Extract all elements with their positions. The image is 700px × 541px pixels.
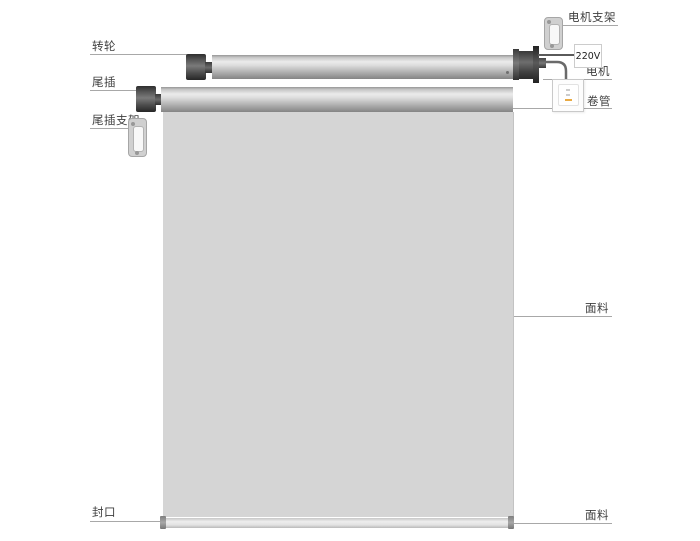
voltage-box: 220V <box>574 44 602 68</box>
roller-tube-label: 卷管 <box>587 95 611 108</box>
switch-indicator-dot <box>566 94 570 96</box>
fabric-bottom-label: 面料 <box>585 509 609 522</box>
tube-screw-dot <box>506 71 509 74</box>
idler-wheel-part <box>186 54 206 80</box>
motor-head <box>519 51 533 79</box>
fabric-panel <box>163 112 514 517</box>
bottom-seal-bar <box>166 518 508 528</box>
motor-tube <box>212 55 513 79</box>
motor-bracket-part <box>544 17 563 50</box>
switch-indicator-dot <box>566 89 570 91</box>
tail-plug-label: 尾插 <box>92 76 116 89</box>
screw-hole-icon <box>550 44 554 48</box>
bracket-slot <box>133 126 144 152</box>
switch-button <box>558 84 579 106</box>
motor-bracket-leader-line <box>558 25 618 26</box>
bottom-bar-right-cap <box>508 516 514 529</box>
idler-wheel-label: 转轮 <box>92 40 116 53</box>
voltage-value: 220V <box>576 51 601 62</box>
bottom-seal-label: 封口 <box>92 506 116 519</box>
motor-shaft <box>539 58 546 68</box>
switch-indicator-accent <box>565 99 572 101</box>
tail-plug-bracket-leader-line <box>90 128 131 129</box>
roller-tube-part <box>161 87 513 112</box>
fabric-middle-label: 面料 <box>585 302 609 315</box>
bottom-seal-leader-line <box>90 521 161 522</box>
tail-plug-leader-line <box>90 90 138 91</box>
motor-bracket-label: 电机支架 <box>568 11 616 24</box>
bracket-slot <box>549 24 560 45</box>
wall-switch <box>552 79 584 112</box>
tail-plug-bracket-part <box>128 118 147 157</box>
voltage-connector-line <box>538 54 574 56</box>
idler-wheel-leader-line <box>90 54 187 55</box>
tail-plug-part <box>136 86 156 112</box>
screw-hole-icon <box>135 151 139 155</box>
roller-blind-diagram: 转轮 尾插 尾插支架 封口 电机支架 电机 卷管 面料 面料 <box>0 0 700 541</box>
